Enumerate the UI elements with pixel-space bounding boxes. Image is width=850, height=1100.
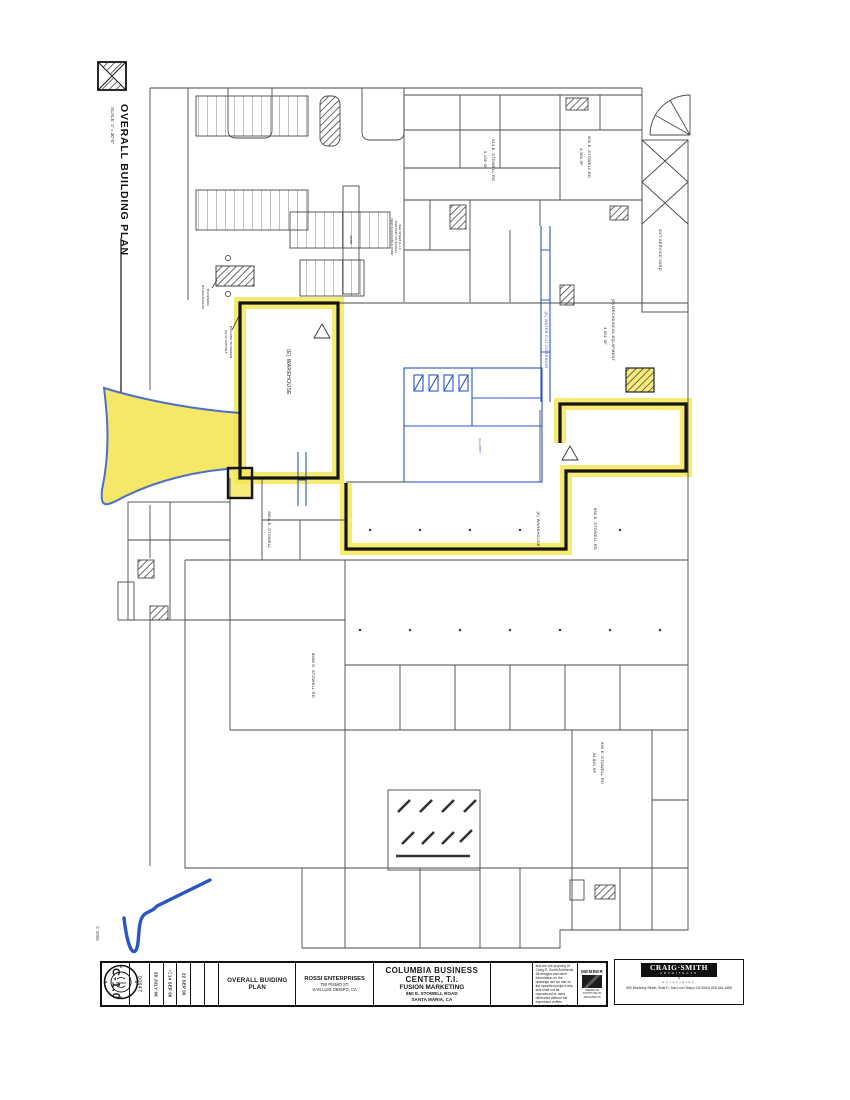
suite-600-area: 4,385 SF [579,148,584,166]
suite-860a-label: 860A E. STOWELL [267,511,272,549]
member-caption: AMERICAN INSTITUTE OF ARCHITECTS [578,989,606,999]
architect-logo: CRAIG·SMITH ARCHITECTS [641,963,717,977]
ada-stall-hatch [216,266,254,286]
sheet-title-group: OVERALL BUILDING PLAN SCALE: 1" = 30'-0" [98,62,130,392]
suite-890-area: 34,891 SF [592,753,597,774]
project-cell: COLUMBIA BUSINESS CENTER, T.I. FUSION MA… [374,963,491,1005]
project-address-2: SANTA MARIA, CA [411,997,452,1002]
warehouse-lower-label: (E) WAREHOUSE [536,511,541,546]
ramp-note-3: SEE SHEET A-1.0 [398,224,402,250]
sheet-title-text: OVERALL BUIDING PLAN [219,977,295,991]
warehouse-label: (E) WAREHOUSE [285,349,291,395]
owner-address-2: SAN LUIS OBISPO, CA [312,987,356,992]
revision-date: 28 JULY 06 [154,972,159,997]
disclaimer-text: These drawings are instruments of servic… [533,963,578,1005]
roof-equipment-hatch [626,368,654,392]
access-funnel-highlight [102,388,240,504]
angled-fixtures [396,800,476,856]
equipment-room [388,790,480,870]
empty-revision-cell [191,963,205,1005]
mechanical-label: (E) MECHANICAL EQUIPMENT [611,299,616,362]
new-lobby-outline [404,368,542,482]
mechanical-area: 4,591 SF [603,327,608,345]
architect-address: 890 Monterey Street, Suite D, San Luis O… [626,986,731,990]
owner-cell: ROSSI ENTERPRISES 750 PISMO ST. SAN LUIS… [296,963,373,1005]
pen-checkmark-scribble [124,880,210,952]
architect-block: CRAIG·SMITH ARCHITECTS & associates 890 … [614,959,744,1005]
revision-date: 22 SEP 06 [181,973,186,996]
floor-plan-canvas: OVERALL BUILDING PLAN SCALE: 1" = 30'-0"… [0,0,850,1100]
yard-braces [642,140,688,224]
member-label: MEMBER [581,969,603,974]
suite-890-upper-label: 890 E. STOWELL RD [593,508,598,550]
architect-subtitle: ARCHITECTS [641,972,717,975]
sheet-title-cell: OVERALL BUIDING PLAN [219,963,296,1005]
parking-row [290,212,390,248]
ramp-label: RAMP [349,236,353,245]
revision-cell: 22 SEP 06 [177,963,191,1005]
revision-delta-markers [314,324,578,460]
building-linework [118,88,690,948]
revision-cell: △ 14 SEP 06 [164,963,178,1005]
project-name-1: COLUMBIA BUSINESS [385,966,478,975]
service-yard-label: EXT SERVICE YARD [658,229,663,270]
ada-note-1: (E) ADA ACCESS [201,285,205,309]
disclaimer-cell: These drawings are instruments of servic… [533,963,579,1005]
ramp-note-2: AND PATH OF TRAVEL [394,221,398,254]
plan-labels: (E) WAREHOUSE 614 E. STOWELL RD 9,135 SF… [201,136,663,784]
stamp-cell [491,963,533,1005]
ada-note-2: TO REMAIN [206,288,210,305]
suite-860b-label: 860B E. STOWELL RD. [311,653,316,699]
member-cell: MEMBER AMERICAN INSTITUTE OF ARCHITECTS [578,963,606,1005]
architect-associates: associates [662,981,695,984]
asphalt-note-2: BUILDING TO REMAIN [229,326,233,359]
asphalt-note-1: (E) 12' ASPHALT [224,330,228,354]
revision-date: 14 SEP 06 [167,975,172,998]
parking-row [196,96,308,136]
revision-cell: 28 JULY 06 [150,963,164,1005]
suite-890-label: 890 E. STOWELL RD [600,742,605,784]
project-tenant: FUSION MARKETING [400,984,465,992]
aia-logo-icon [582,975,602,988]
drawing-title: OVERALL BUILDING PLAN [118,104,130,256]
ramp-note-1: NEW ACCESSIBLE RAMP [390,218,394,255]
drive-loop-2 [362,88,404,140]
water-cut-corridor-label: (E) WATER CUT CORRIDOR [544,312,549,369]
corner-fan [650,95,690,135]
suite-600-label: 600 E. STOWELL RD [587,136,592,178]
project-name-2: CENTER, T.I. [405,975,458,984]
drawing-scale: SCALE: 1" = 30'-0" [110,107,115,144]
lobby-label: (E) LOBBY [478,438,482,453]
suite-614-label: 614 E. STOWELL RD [491,139,496,181]
empty-revision-cell [205,963,219,1005]
parking-row [300,260,364,296]
restroom-fixtures [414,375,468,391]
suite-614-area: 9,135 SF [483,151,488,169]
landscape-island [320,96,340,146]
title-block: C-1.0 00647 28 JULY 06 △ 14 SEP 06 22 SE… [100,961,608,1007]
copyright-note: © 2006 [95,926,101,941]
drawing-sheet: OVERALL BUILDING PLAN SCALE: 1" = 30'-0"… [0,0,850,1100]
service-yard [642,140,688,312]
